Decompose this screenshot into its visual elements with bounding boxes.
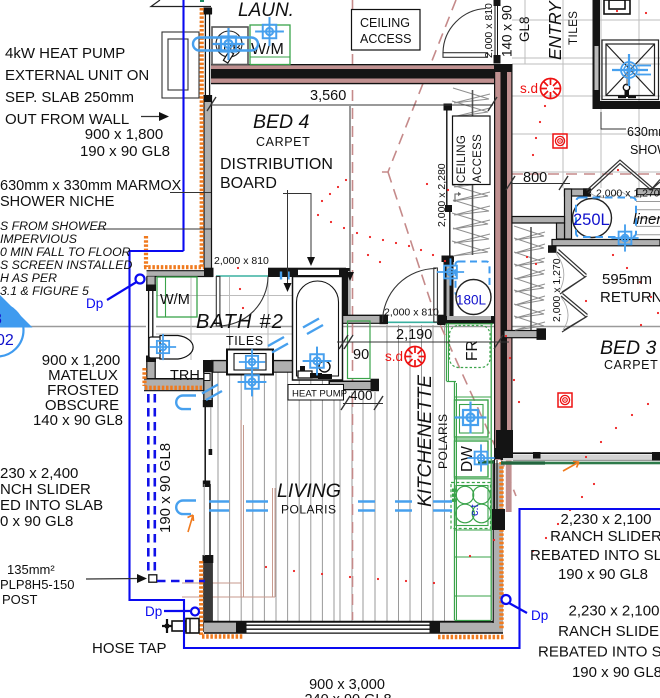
svg-text:S SCREEN INSTALLED: S SCREEN INSTALLED	[0, 258, 132, 272]
svg-text:CARPET: CARPET	[604, 358, 658, 372]
svg-text:2,000 x 810: 2,000 x 810	[214, 255, 269, 267]
svg-text:W/M: W/M	[160, 292, 190, 308]
svg-text:CARPET: CARPET	[256, 135, 310, 149]
svg-text:REBATED INTO SLAB: REBATED INTO SLAB	[530, 547, 660, 564]
svg-text:TILES: TILES	[568, 11, 580, 45]
svg-text:s.d: s.d	[520, 81, 538, 96]
svg-text:180L: 180L	[456, 293, 487, 308]
svg-text:CEILING: CEILING	[360, 16, 410, 30]
svg-text:POLARIS: POLARIS	[436, 413, 450, 469]
svg-text:Dp: Dp	[145, 604, 162, 619]
svg-text:linen: linen	[633, 211, 660, 228]
svg-text:POST: POST	[2, 592, 37, 607]
svg-text:Dp: Dp	[86, 296, 103, 311]
svg-text:RANCH SLIDER: RANCH SLIDER	[558, 623, 660, 640]
svg-text:140 x 90: 140 x 90	[500, 5, 515, 57]
svg-text:135mm²: 135mm²	[7, 562, 55, 577]
svg-text:400: 400	[350, 388, 373, 403]
svg-text:2,230 x 2,100: 2,230 x 2,100	[561, 511, 652, 528]
svg-text:POLARIS: POLARIS	[281, 503, 337, 517]
svg-text:190 x 90 GL8: 190 x 90 GL8	[157, 443, 174, 533]
svg-text:Dp: Dp	[531, 608, 548, 623]
svg-text:RETURN: RETURN	[600, 289, 660, 306]
svg-text:4kW HEAT PUMP: 4kW HEAT PUMP	[5, 45, 125, 62]
svg-text:RANCH SLIDER: RANCH SLIDER	[550, 528, 660, 545]
svg-text:LIVING: LIVING	[277, 480, 341, 502]
svg-text:ENTRY: ENTRY	[545, 0, 565, 60]
svg-text:240 x 90 GL8: 240 x 90 GL8	[304, 692, 391, 698]
svg-text:SHOWER: SHOWER	[630, 143, 660, 157]
svg-text:REBATED INTO SLAB: REBATED INTO SLAB	[538, 644, 660, 661]
svg-text:0 MIN FALL TO FLOOR: 0 MIN FALL TO FLOOR	[0, 245, 131, 259]
svg-text:s.d: s.d	[385, 349, 403, 364]
svg-text:630mm x 330mm MARMOX: 630mm x 330mm MARMOX	[0, 178, 182, 194]
svg-text:DISTRIBUTION: DISTRIBUTION	[220, 156, 333, 173]
svg-text:2,000 x 810: 2,000 x 810	[384, 307, 439, 319]
svg-text:TRH: TRH	[170, 368, 200, 384]
svg-text:c.t: c.t	[469, 504, 481, 516]
svg-text:LAUN.: LAUN.	[238, 0, 294, 21]
svg-text:2,000 x 2,280: 2,000 x 2,280	[436, 163, 448, 227]
svg-text:IMPERVIOUS: IMPERVIOUS	[0, 232, 78, 246]
svg-text:250L: 250L	[573, 211, 610, 229]
svg-text:230 x 2,400: 230 x 2,400	[0, 465, 78, 482]
svg-text:ACCESS: ACCESS	[360, 32, 411, 46]
svg-text:900 x 1,800: 900 x 1,800	[85, 126, 163, 143]
svg-text:HOSE TAP: HOSE TAP	[92, 640, 166, 657]
svg-text:900 x 3,000: 900 x 3,000	[309, 677, 385, 693]
svg-text:BATH #2: BATH #2	[196, 311, 284, 333]
svg-text:3,560: 3,560	[310, 88, 346, 104]
svg-text:ACCESS: ACCESS	[472, 134, 484, 183]
svg-text:2,000 x 1,270: 2,000 x 1,270	[551, 258, 563, 322]
svg-text:800: 800	[523, 170, 547, 186]
svg-text:FR: FR	[464, 340, 481, 361]
svg-text:02: 02	[0, 332, 14, 349]
svg-text:S FROM SHOWER: S FROM SHOWER	[0, 219, 107, 233]
svg-text:BED 3: BED 3	[600, 337, 657, 359]
svg-text:EXTERNAL UNIT ON: EXTERNAL UNIT ON	[5, 67, 149, 84]
svg-text:BED 4: BED 4	[253, 111, 310, 133]
svg-text:KITCHENETTE: KITCHENETTE	[415, 375, 436, 507]
svg-text:2,230 x 2,100: 2,230 x 2,100	[569, 603, 660, 620]
svg-text:ED INTO SLAB: ED INTO SLAB	[0, 497, 103, 514]
svg-text:PLP8H5-150: PLP8H5-150	[0, 577, 74, 592]
svg-text:190 x 90 GL8: 190 x 90 GL8	[558, 566, 648, 583]
svg-text:GL8: GL8	[517, 16, 532, 42]
svg-text:BOARD: BOARD	[220, 175, 277, 192]
svg-text:0 x 90 GL8: 0 x 90 GL8	[0, 513, 73, 530]
svg-text:H AS PER: H AS PER	[0, 271, 57, 285]
svg-text:90: 90	[353, 347, 369, 363]
svg-text:630mm: 630mm	[627, 125, 660, 139]
svg-text:140 x 90 GL8: 140 x 90 GL8	[33, 412, 123, 429]
svg-text:CEILING: CEILING	[456, 135, 468, 183]
svg-text:595mm: 595mm	[602, 271, 652, 288]
svg-text:190 x 90 GL8: 190 x 90 GL8	[80, 143, 170, 160]
svg-text:8: 8	[0, 311, 2, 328]
svg-text:SHOWER NICHE: SHOWER NICHE	[0, 194, 115, 210]
svg-text:SEP. SLAB 250mm: SEP. SLAB 250mm	[5, 89, 134, 106]
svg-text:2,190: 2,190	[396, 327, 432, 343]
svg-text:3.1 & FIGURE 5: 3.1 & FIGURE 5	[0, 284, 89, 298]
svg-text:TILES: TILES	[226, 334, 264, 348]
svg-text:2,000 x 810: 2,000 x 810	[483, 3, 495, 58]
svg-text:2,000 x 1,270: 2,000 x 1,270	[596, 188, 660, 200]
svg-text:HEAT PUMP: HEAT PUMP	[292, 389, 347, 400]
svg-text:190 x 90 GL8: 190 x 90 GL8	[572, 664, 660, 681]
svg-text:NCH SLIDER: NCH SLIDER	[0, 481, 91, 498]
